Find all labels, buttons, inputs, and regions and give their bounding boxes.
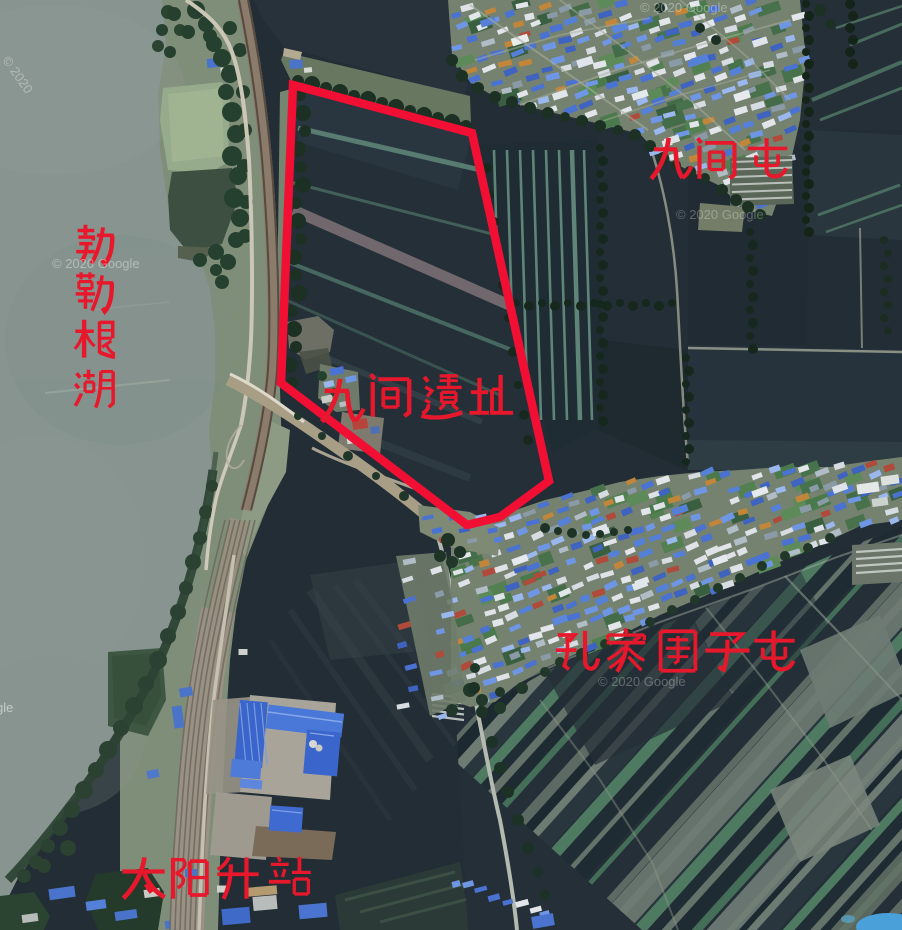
svg-text:© 2020 Google: © 2020 Google (598, 674, 686, 689)
svg-text:© 2020 Google: © 2020 Google (676, 207, 764, 222)
svg-text:gle: gle (0, 700, 13, 715)
svg-text:© 2020 Google: © 2020 Google (640, 0, 728, 15)
svg-text:© 2020 Google: © 2020 Google (52, 256, 140, 271)
